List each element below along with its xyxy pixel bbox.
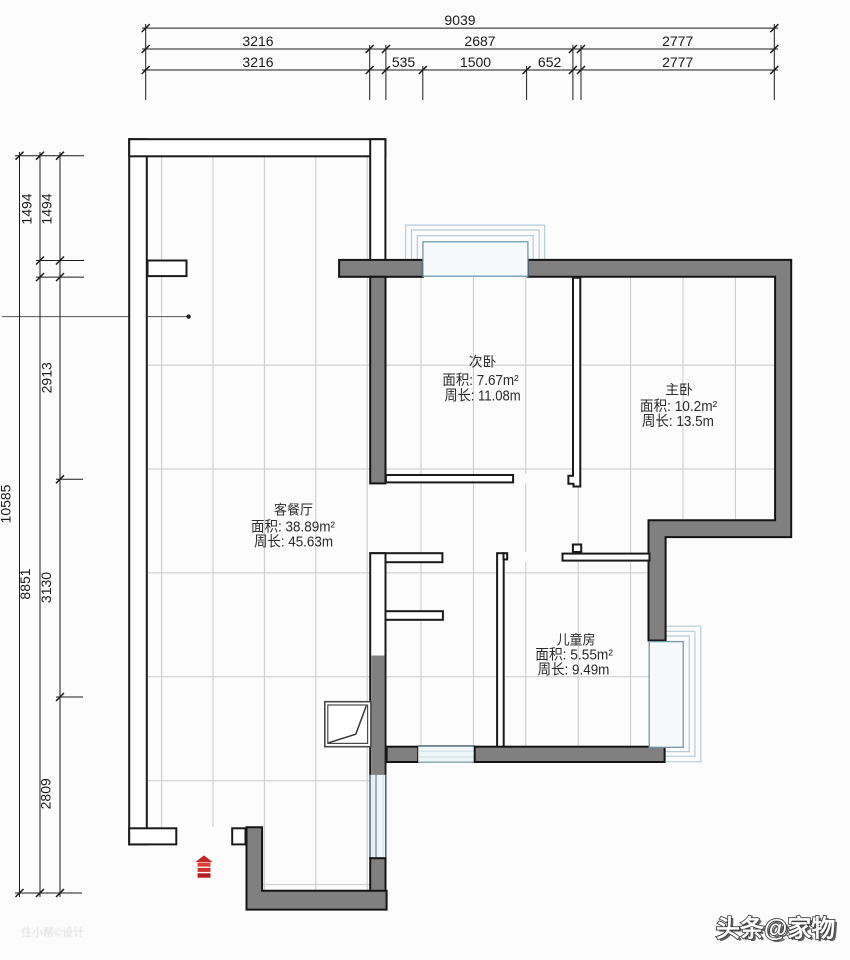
svg-text:儿童房: 儿童房 xyxy=(557,631,596,647)
svg-text:652: 652 xyxy=(538,54,562,70)
svg-text:3216: 3216 xyxy=(242,54,273,70)
svg-text:3216: 3216 xyxy=(242,33,273,49)
svg-text:1494: 1494 xyxy=(19,193,35,224)
svg-text:3130: 3130 xyxy=(38,572,54,603)
svg-text:周长: 9.49m: 周长: 9.49m xyxy=(538,661,610,678)
svg-text:面积: 10.2m²: 面积: 10.2m² xyxy=(640,398,717,415)
svg-text:8851: 8851 xyxy=(17,568,33,599)
svg-text:次卧: 次卧 xyxy=(469,355,497,370)
svg-text:面积: 5.55m²: 面积: 5.55m² xyxy=(535,647,613,664)
svg-text:2913: 2913 xyxy=(39,362,55,393)
svg-text:535: 535 xyxy=(392,54,416,70)
svg-text:1494: 1494 xyxy=(38,193,54,224)
svg-text:周长: 13.5m: 周长: 13.5m xyxy=(642,413,714,430)
svg-text:2777: 2777 xyxy=(662,33,693,49)
svg-text:客餐厅: 客餐厅 xyxy=(274,502,313,518)
svg-text:住小帮©设计: 住小帮©设计 xyxy=(21,925,84,939)
svg-text:10585: 10585 xyxy=(0,484,14,523)
svg-text:9039: 9039 xyxy=(444,12,475,28)
svg-text:头条@家物: 头条@家物 xyxy=(716,915,835,943)
svg-text:周长: 11.08m: 周长: 11.08m xyxy=(445,388,521,405)
svg-text:周长: 45.63m: 周长: 45.63m xyxy=(254,534,333,551)
svg-text:面积: 38.89m²: 面积: 38.89m² xyxy=(251,519,335,536)
svg-text:主卧: 主卧 xyxy=(665,382,693,397)
svg-text:面积: 7.67m²: 面积: 7.67m² xyxy=(442,372,518,389)
svg-text:2777: 2777 xyxy=(662,54,693,70)
svg-text:2809: 2809 xyxy=(38,778,54,809)
svg-text:2687: 2687 xyxy=(464,33,495,49)
svg-text:1500: 1500 xyxy=(460,54,491,70)
